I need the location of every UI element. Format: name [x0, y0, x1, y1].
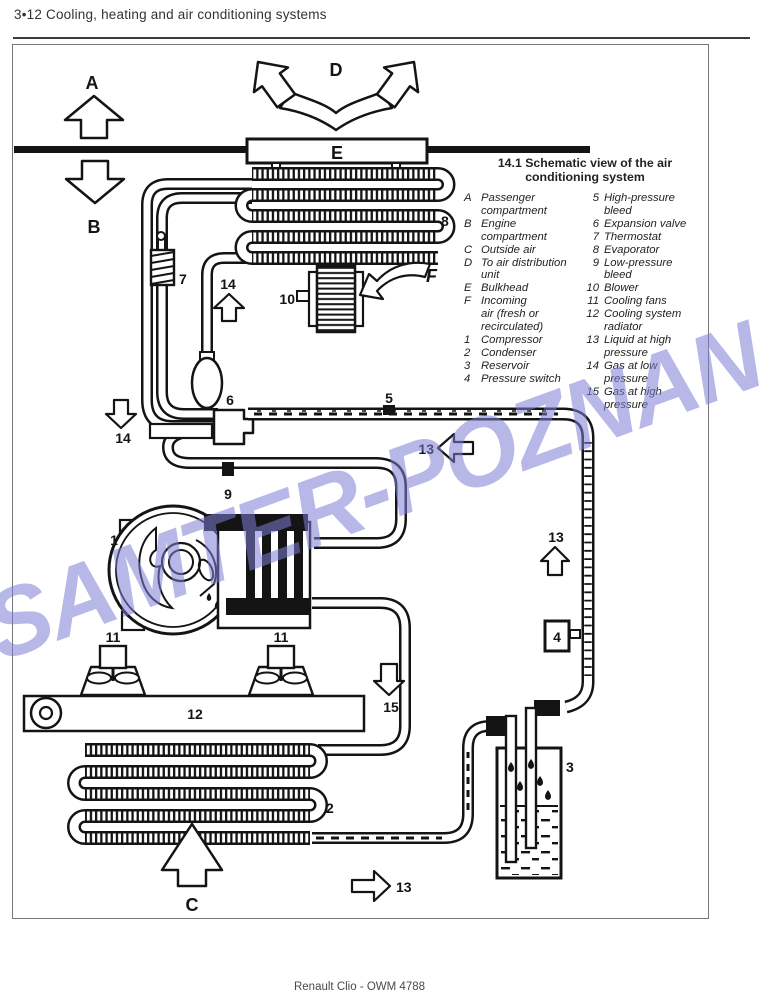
legend-item: DTo air distribution unit	[464, 257, 582, 283]
legend-item: EBulkhead	[464, 282, 582, 295]
legend-col-right: 5High-pressure bleed6Expansion valve7The…	[584, 192, 706, 411]
callout-11b: 11	[274, 629, 289, 645]
legend-item-label: Reservoir	[481, 360, 529, 373]
legend-item-key: E	[464, 282, 481, 295]
callout-4: 4	[553, 629, 561, 645]
legend-title-line1: 14.1 Schematic view of the air	[464, 156, 706, 170]
cooling-fan-1: 11	[81, 629, 145, 695]
legend-item-label: Condenser	[481, 347, 536, 360]
legend-item-key: 15	[584, 386, 599, 412]
legend-item-key: A	[464, 192, 481, 218]
legend-item-key: 14	[584, 360, 599, 386]
legend-item-label: Compressor	[481, 334, 543, 347]
legend-item-label: Engine compartment	[481, 218, 547, 244]
callout-6: 6	[226, 392, 234, 408]
figure-legend: 14.1 Schematic view of the air condition…	[464, 156, 706, 411]
legend-item-key: 3	[464, 360, 481, 373]
legend-item-label: Evaporator	[604, 244, 659, 257]
header-rule	[13, 37, 750, 39]
legend-item-key: 8	[584, 244, 599, 257]
flow-arrow-13-left: 13	[418, 434, 473, 462]
legend-item: 12Cooling system radiator	[584, 308, 706, 334]
compressor: 1	[109, 506, 310, 634]
arrow-14-down: 14	[106, 400, 136, 446]
legend-item-label: Cooling fans	[604, 295, 667, 308]
legend-item: 10Blower	[584, 282, 706, 295]
bleed-9-tab	[222, 462, 234, 476]
reservoir: 3	[497, 700, 574, 878]
pressure-switch: 4	[545, 621, 580, 651]
legend-item: 6Expansion valve	[584, 218, 706, 231]
flow-arrow-13-up: 13	[541, 529, 569, 575]
callout-1: 1	[110, 532, 118, 548]
blower: 10	[279, 266, 363, 332]
legend-item: 8Evaporator	[584, 244, 706, 257]
cooling-fan-2: 11	[249, 629, 313, 695]
page-footer: Renault Clio - OWM 4788	[12, 981, 707, 993]
callout-e: E	[331, 143, 343, 163]
callout-b: B	[88, 217, 101, 237]
legend-item: 7Thermostat	[584, 231, 706, 244]
legend-item-label: Incoming air (fresh or recirculated)	[481, 295, 543, 334]
legend-item: 15Gas at high pressure	[584, 386, 706, 412]
legend-item-key: 1	[464, 334, 481, 347]
callout-15: 15	[383, 699, 399, 715]
legend-item-label: To air distribution unit	[481, 257, 567, 283]
arrow-b: B	[66, 161, 124, 237]
callout-10: 10	[279, 291, 295, 307]
callout-9: 9	[224, 486, 232, 502]
legend-item: 2Condenser	[464, 347, 582, 360]
legend-item-key: D	[464, 257, 481, 283]
legend-item-key: 4	[464, 373, 481, 386]
legend-item-label: Pressure switch	[481, 373, 561, 386]
callout-d: D	[330, 60, 343, 80]
legend-item: 5High-pressure bleed	[584, 192, 706, 218]
callout-14b: 14	[115, 430, 131, 446]
callout-a: A	[86, 73, 99, 93]
radiator: 12	[24, 696, 364, 731]
legend-title-line2: conditioning system	[464, 170, 706, 184]
legend-item: 9Low-pressure bleed	[584, 257, 706, 283]
page-header: 3•12 Cooling, heating and air conditioni…	[14, 7, 327, 22]
legend-item: COutside air	[464, 244, 582, 257]
legend-item-key: 2	[464, 347, 481, 360]
callout-5: 5	[385, 390, 393, 406]
callout-2: 2	[326, 800, 334, 816]
legend-title: 14.1 Schematic view of the air condition…	[464, 156, 706, 184]
legend-item-key: 7	[584, 231, 599, 244]
legend-item: BEngine compartment	[464, 218, 582, 244]
arrow-14-up: 14	[214, 276, 244, 321]
legend-item: 4Pressure switch	[464, 373, 582, 386]
condenser-coil: 2	[74, 750, 334, 838]
callout-13a: 13	[418, 441, 434, 457]
legend-item-key: 9	[584, 257, 599, 283]
legend-item-key: 5	[584, 192, 599, 218]
legend-item-label: Passenger compartment	[481, 192, 547, 218]
callout-13b: 13	[548, 529, 564, 545]
legend-item: 11Cooling fans	[584, 295, 706, 308]
callout-12: 12	[187, 706, 203, 722]
arrow-d: D	[241, 50, 431, 130]
legend-item-key: 10	[584, 282, 599, 295]
condenser-outlet-pipe	[312, 716, 510, 838]
legend-item-key: F	[464, 295, 481, 334]
legend-item: FIncoming air (fresh or recirculated)	[464, 295, 582, 334]
legend-col-left: APassenger compartmentBEngine compartmen…	[464, 192, 582, 411]
legend-item-label: Low-pressure bleed	[604, 257, 672, 283]
legend-item: APassenger compartment	[464, 192, 582, 218]
legend-item-label: Liquid at high pressure	[604, 334, 671, 360]
legend-item-key: 12	[584, 308, 599, 334]
callout-8: 8	[441, 213, 449, 229]
legend-item-key: B	[464, 218, 481, 244]
arrow-f: F	[360, 263, 438, 299]
manual-page: 3•12 Cooling, heating and air conditioni…	[0, 0, 763, 1000]
legend-item: 1Compressor	[464, 334, 582, 347]
callout-13c: 13	[396, 879, 412, 895]
legend-item: 13Liquid at high pressure	[584, 334, 706, 360]
legend-item-label: Gas at low pressure	[604, 360, 657, 386]
legend-item-label: Gas at high pressure	[604, 386, 662, 412]
arrow-a: A	[65, 73, 123, 138]
legend-item: 3Reservoir	[464, 360, 582, 373]
callout-14: 14	[220, 276, 236, 292]
legend-item-label: Thermostat	[604, 231, 661, 244]
legend-item-label: Cooling system radiator	[604, 308, 681, 334]
ac-system-diagram: E A B D	[0, 0, 763, 1000]
legend-item-label: Expansion valve	[604, 218, 686, 231]
callout-c: C	[186, 895, 199, 915]
callout-3: 3	[566, 759, 574, 775]
callout-f: F	[426, 266, 438, 286]
evaporator-coil: 8	[242, 174, 450, 258]
legend-item-key: 13	[584, 334, 599, 360]
legend-item-label: Outside air	[481, 244, 536, 257]
legend-item-key: 11	[584, 295, 599, 308]
legend-item-label: Bulkhead	[481, 282, 528, 295]
legend-item-label: Blower	[604, 282, 639, 295]
flow-arrow-13-right: 13	[352, 871, 412, 901]
callout-7: 7	[179, 271, 187, 287]
legend-item-key: C	[464, 244, 481, 257]
legend-item: 14Gas at low pressure	[584, 360, 706, 386]
legend-item-key: 6	[584, 218, 599, 231]
legend-item-label: High-pressure bleed	[604, 192, 675, 218]
callout-11a: 11	[106, 629, 121, 645]
